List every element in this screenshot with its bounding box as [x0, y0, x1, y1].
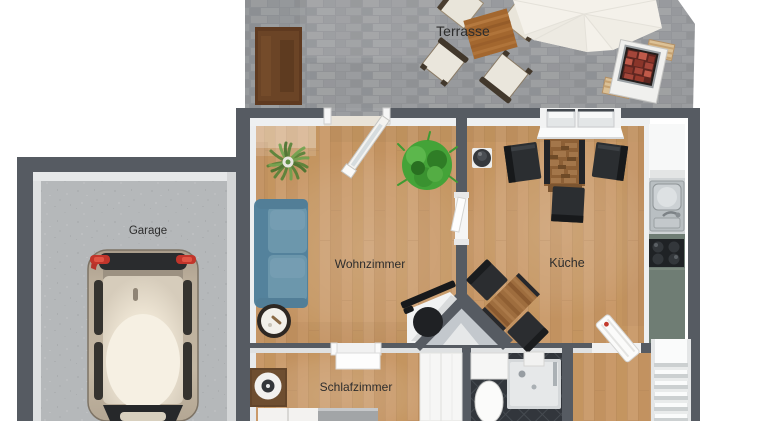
svg-text:Schlafzimmer: Schlafzimmer	[320, 380, 393, 394]
svg-text:Terrasse: Terrasse	[436, 23, 490, 39]
svg-text:Wohnzimmer: Wohnzimmer	[335, 257, 405, 271]
svg-text:Garage: Garage	[129, 225, 167, 237]
svg-text:Küche: Küche	[549, 256, 584, 270]
